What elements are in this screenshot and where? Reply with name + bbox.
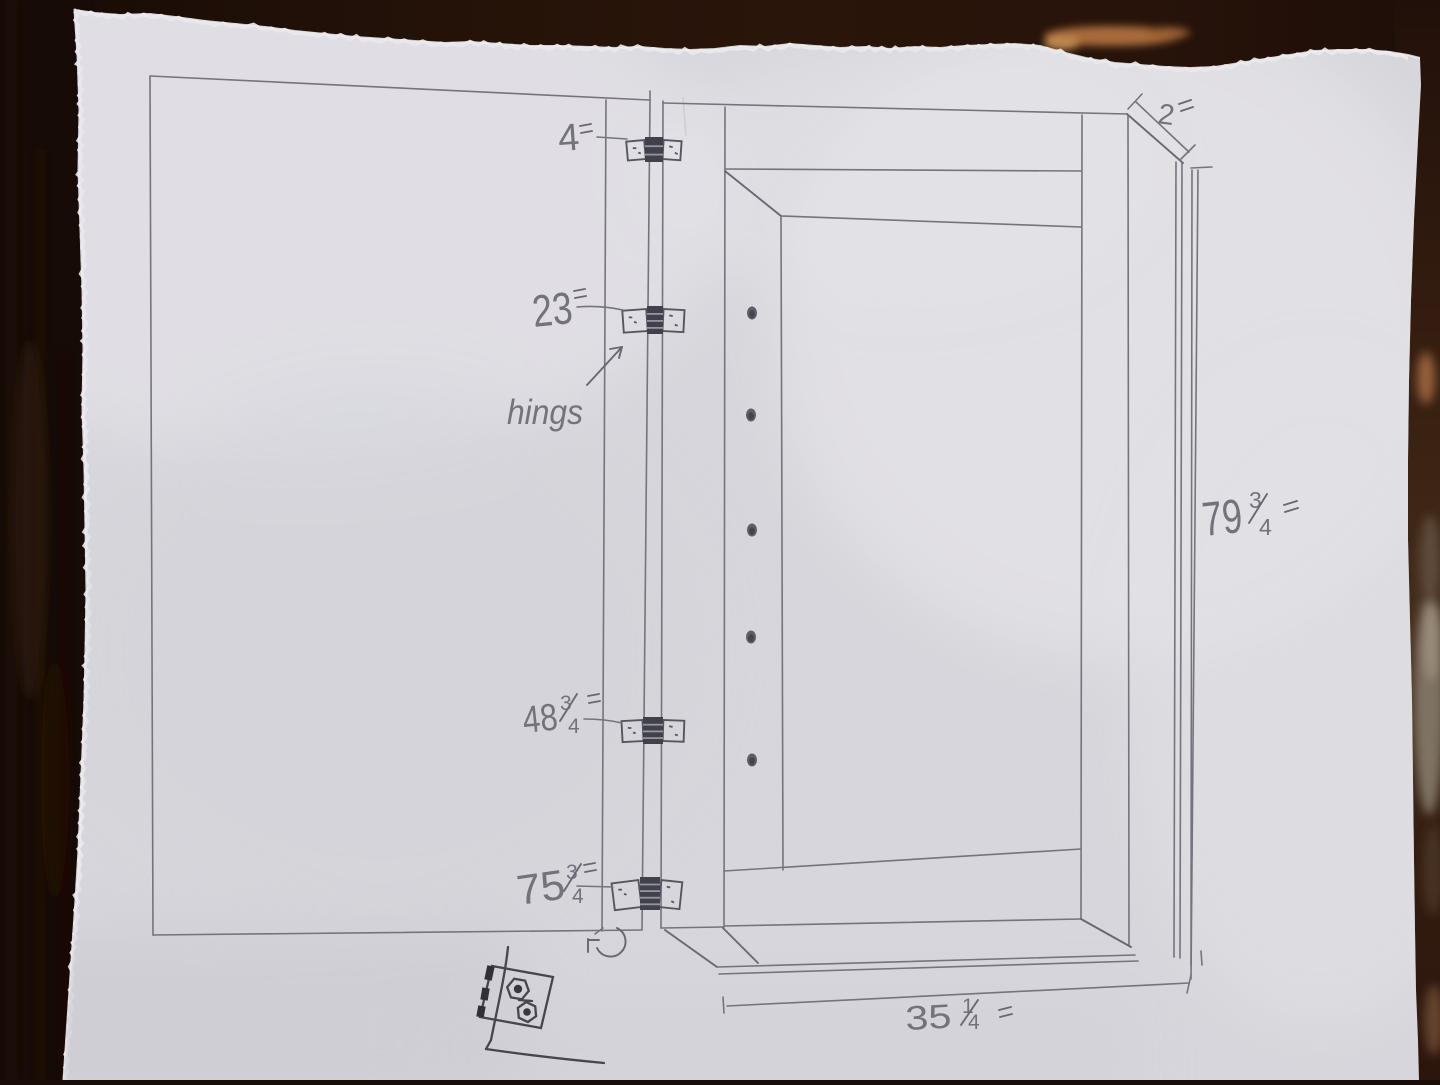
svg-text:79: 79	[1200, 490, 1245, 547]
svg-text:4: 4	[557, 117, 581, 160]
svg-text:4: 4	[1259, 514, 1272, 540]
svg-text:hings: hings	[507, 393, 583, 432]
svg-text:4: 4	[568, 715, 580, 738]
svg-text:4: 4	[572, 885, 584, 908]
svg-text:35: 35	[904, 998, 952, 1038]
svg-text:75: 75	[514, 861, 568, 914]
svg-text:23: 23	[530, 282, 575, 337]
svg-text:48: 48	[521, 697, 560, 742]
svg-text:3: 3	[1249, 487, 1262, 513]
svg-text:4: 4	[968, 1011, 980, 1034]
